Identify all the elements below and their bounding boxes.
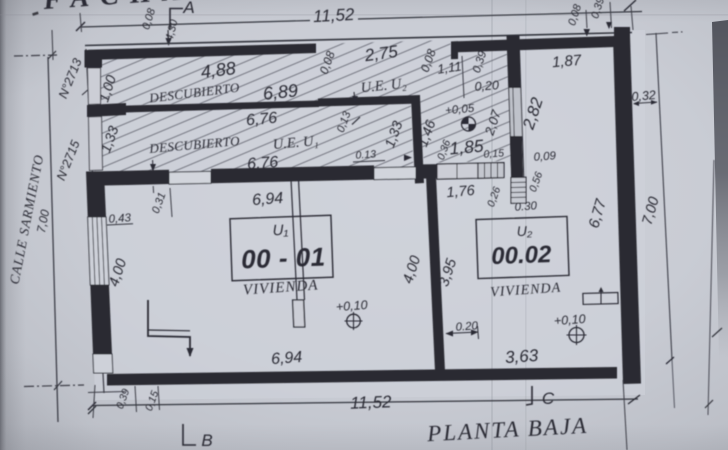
svg-text:+0,10: +0,10: [335, 298, 368, 314]
svg-text:0,20: 0,20: [474, 78, 499, 94]
svg-text:00.02: 00.02: [491, 241, 553, 270]
svg-text:U₂: U₂: [516, 223, 533, 240]
svg-text:B: B: [201, 431, 212, 450]
svg-text:11,52: 11,52: [313, 5, 356, 26]
svg-text:1,76: 1,76: [446, 183, 476, 201]
svg-text:6,76: 6,76: [247, 154, 279, 173]
svg-text:6,94: 6,94: [252, 190, 284, 209]
svg-text:1,87: 1,87: [551, 52, 582, 72]
svg-text:+0,10: +0,10: [553, 312, 586, 328]
svg-text:0,09: 0,09: [533, 150, 557, 164]
svg-text:0,15: 0,15: [483, 147, 504, 160]
svg-text:0.13: 0.13: [355, 148, 376, 161]
svg-text:4,88: 4,88: [200, 58, 237, 82]
svg-text:U₁: U₁: [272, 222, 288, 240]
svg-text:0.30: 0.30: [514, 200, 538, 214]
svg-text:1,85: 1,85: [449, 136, 485, 159]
svg-text:6,94: 6,94: [271, 349, 303, 368]
svg-text:C: C: [542, 389, 555, 408]
svg-text:A: A: [182, 0, 194, 17]
svg-text:00 - 01: 00 - 01: [241, 241, 326, 274]
svg-text:6,89: 6,89: [262, 80, 299, 104]
svg-text:11,52: 11,52: [350, 392, 392, 412]
svg-text:6,76: 6,76: [245, 110, 278, 130]
svg-text:3,63: 3,63: [504, 346, 539, 367]
